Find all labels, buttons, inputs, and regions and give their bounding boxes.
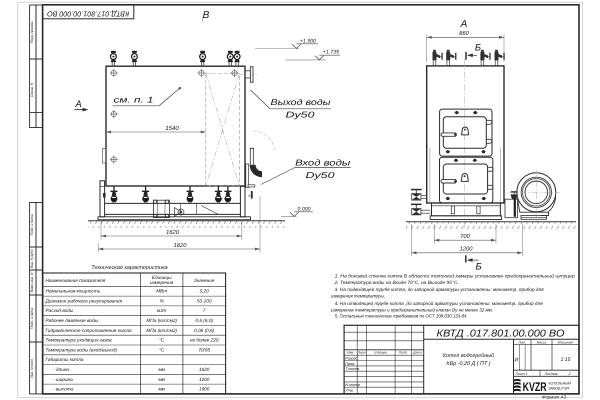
svg-text:0,06 (0,6): 0,06 (0,6) [194,328,215,333]
svg-text:70/95: 70/95 [198,347,210,352]
svg-text:Котел водогрейный: Котел водогрейный [443,353,494,359]
svg-text:Подп.: Подп. [399,351,408,355]
svg-text:50-100: 50-100 [197,298,212,303]
svg-text:Температура воды (вход/выход): Температура воды (вход/выход) [46,347,118,352]
svg-text:Пров.: Пров. [345,362,355,366]
svg-text:700: 700 [460,233,470,240]
svg-text:Лит.: Лит. [517,340,526,344]
svg-text:°С: °С [159,338,165,343]
svg-text:0.000: 0.000 [298,206,311,212]
svg-text:мм: мм [158,377,165,382]
svg-text:Лист: Лист [357,351,367,355]
svg-text:1820: 1820 [199,367,210,372]
svg-text:Взам. инв. N: Взам. инв. N [30,272,34,292]
svg-text:ЗАВОД РЭП: ЗАВОД РЭП [549,386,570,390]
svg-text:Подп. и дата: Подп. и дата [30,308,34,329]
svg-text:см. п. 1: см. п. 1 [114,96,154,105]
svg-text:- длина: - длина [53,367,69,372]
svg-text:КВТД .017.801.00.000 ВО: КВТД .017.801.00.000 ВО [437,329,565,340]
svg-text:+1.735: +1.735 [323,50,339,56]
svg-text:Разраб.: Разраб. [345,356,358,360]
svg-text:измерения температуры.: измерения температуры. [331,294,385,299]
svg-text:1900: 1900 [199,387,210,392]
svg-text:Температура уходящих газов: Температура уходящих газов [46,338,113,343]
svg-text:0,6 (6,0): 0,6 (6,0) [195,318,213,323]
svg-text:Инв. N подл.: Инв. N подл. [30,358,34,378]
svg-text:2: 2 [568,372,571,376]
svg-text:КОТЕЛЬНЫЙ: КОТЕЛЬНЫЙ [549,381,572,386]
svg-text:Расход воды: Расход воды [46,308,74,313]
svg-text:1820: 1820 [174,242,188,249]
svg-text:3. На подводящей трубе кот: 3. На подводящей трубе котла, до запорно… [335,287,545,292]
svg-text:Б: Б [476,262,482,273]
svg-text:Н.контр.: Н.контр. [345,383,361,387]
svg-text:Справ. N: Справ. N [30,82,34,97]
svg-text:Изм.: Изм. [347,351,354,355]
svg-text:Dy50: Dy50 [306,170,335,180]
svg-text:1200: 1200 [460,246,474,253]
svg-text:1:15: 1:15 [560,357,570,363]
svg-text:Диапазон рабочего регулировани: Диапазон рабочего регулирования [45,298,123,303]
svg-text:измерения температуры и пре: измерения температуры и предохранительны… [331,308,493,313]
svg-text:Выход воды: Выход воды [271,97,332,107]
svg-text:мм: мм [158,367,165,372]
svg-text:1620: 1620 [166,229,180,236]
svg-text:N докум.: N докум. [374,351,387,355]
svg-text:Гидравлическое сопротивление к: Гидравлическое сопротивление котла [46,328,133,333]
svg-text:Т.контр.: Т.контр. [345,367,360,371]
svg-text:МПа (кгс/см2): МПа (кгс/см2) [146,328,177,333]
svg-text:МВт: МВт [156,289,167,294]
svg-text:Подп. и дата: Подп. и дата [30,214,34,235]
svg-text:Номинальная мощность: Номинальная мощность [46,289,101,294]
svg-text:KVZR: KVZR [523,380,547,394]
svg-text:5. Остальные технические тр: 5. Остальные технические требования по О… [335,314,468,319]
svg-text:Масса: Масса [537,340,547,344]
svg-text:И: И [514,358,518,364]
svg-text:- ширина: - ширина [53,377,73,382]
svg-text:860: 860 [459,30,469,37]
svg-text:Дата: Дата [412,351,422,355]
svg-text:МПа (кгс/см2): МПа (кгс/см2) [146,318,177,323]
svg-text:Листов: Листов [543,372,557,376]
svg-text:2. Температура воды на Вхо: 2. Температура воды на Входе 70°С, на Вы… [334,280,459,285]
svg-text:Dy50: Dy50 [286,110,315,120]
svg-text:А: А [460,19,468,30]
svg-text:+1.900: +1.900 [300,38,316,44]
svg-text:1540: 1540 [165,125,179,132]
svg-text:КВТД.017.801.00.000 ВО: КВТД.017.801.00.000 ВО [47,9,129,18]
svg-text:Наименование показателя: Наименование показателя [46,278,106,283]
svg-text:Б: Б [475,43,481,54]
svg-text:Вход воды: Вход воды [295,158,351,168]
svg-text:Техническая характеристика: Техническая характеристика [91,265,167,271]
svg-text:Габариты котла: Габариты котла [46,357,84,362]
svg-text:°С: °С [159,347,165,352]
svg-text:Утв.: Утв. [345,389,353,393]
svg-text:1. На боковой стенке котла: 1. На боковой стенке котла В области топ… [335,274,575,279]
svg-text:%: % [160,298,164,303]
svg-text:В: В [203,10,210,21]
svg-text:Лист 1: Лист 1 [514,372,527,376]
svg-text:мм: мм [158,387,165,392]
svg-text:измерения: измерения [150,280,174,285]
svg-text:Инв. N дубл.: Инв. N дубл. [30,249,34,269]
svg-text:А: А [74,99,81,110]
svg-text:м3/ч: м3/ч [157,308,167,313]
svg-text:1200: 1200 [199,377,210,382]
svg-text:Формат А3: Формат А3 [542,395,567,400]
svg-text:0,20: 0,20 [200,289,210,294]
svg-text:Масштаб: Масштаб [558,340,574,344]
svg-text:КВр -0,20 Д ( ПТ ): КВр -0,20 Д ( ПТ ) [446,361,490,367]
svg-text:Перв. примен.: Перв. примен. [30,21,34,44]
svg-text:7: 7 [203,308,206,313]
svg-text:Рабочее давление воды: Рабочее давление воды [46,318,99,323]
svg-text:- высота: - высота [53,387,74,392]
svg-text:не более 220: не более 220 [190,338,219,343]
svg-text:Значение: Значение [194,278,215,283]
svg-text:4. На отводящей трубе котл: 4. На отводящей трубе котла ,до запорной… [335,301,544,306]
